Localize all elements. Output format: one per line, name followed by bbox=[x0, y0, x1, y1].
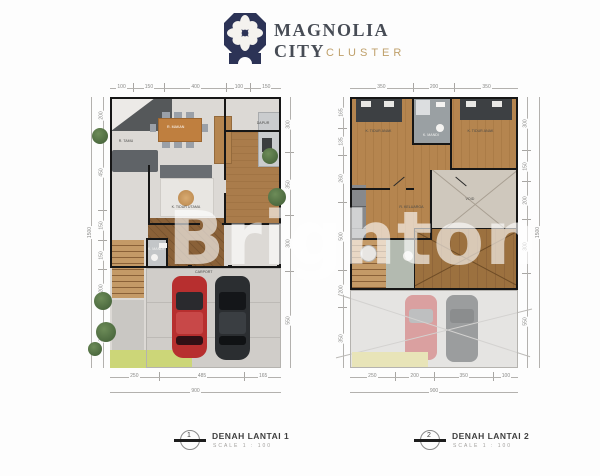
plan2-dims-right: 300 150 200 300 550 bbox=[522, 97, 531, 368]
room-label-bedroom: K. TIDUR UTAMA bbox=[172, 205, 201, 209]
plan1-dims-top: 100 150 400 100 150 bbox=[110, 83, 281, 92]
wall bbox=[350, 188, 390, 190]
magnolia-logo-icon bbox=[222, 11, 268, 65]
room-label-carport: CARPORT bbox=[195, 270, 213, 274]
plan2-dims-bottom-total: 900 bbox=[350, 387, 518, 396]
room-label-hall: R. KELUARGA bbox=[399, 205, 423, 209]
brand-title-line1: MAGNOLIA bbox=[274, 20, 389, 41]
room-label-living: R. TAMU bbox=[119, 139, 133, 143]
wall bbox=[224, 97, 226, 132]
room-label-bed2: K. TIDUR ANAK bbox=[467, 129, 493, 133]
plan1-dims-bottom-total: 900 bbox=[110, 387, 281, 396]
wall bbox=[412, 143, 452, 145]
plan2-dims-left: 165 135 260 500 200 350 bbox=[338, 97, 347, 368]
brand-title-line2: CITY bbox=[274, 41, 325, 62]
plan2-dims-top: 350 200 350 bbox=[350, 83, 518, 92]
room-label-bath2: K. MANDI bbox=[423, 133, 439, 137]
ref-bar-2 bbox=[414, 439, 446, 442]
black-car bbox=[215, 276, 250, 360]
tree-icon bbox=[88, 342, 102, 356]
ref-number-1: 1 bbox=[180, 432, 198, 439]
carport-boundary bbox=[146, 268, 281, 368]
red-car bbox=[172, 276, 207, 358]
wall bbox=[224, 130, 226, 180]
ref-number-2: 2 bbox=[420, 432, 438, 439]
room-label-bath: K. MANDI bbox=[148, 247, 164, 251]
wall bbox=[412, 97, 414, 145]
brand-subtitle: CLUSTER bbox=[326, 47, 405, 59]
room-label-bed1: K. TIDUR ANAK bbox=[365, 129, 391, 133]
plan1-perimeter-wall bbox=[110, 97, 281, 268]
wall bbox=[224, 193, 226, 225]
ref-label-2: DENAH LANTAI 2 bbox=[452, 431, 529, 441]
wall bbox=[110, 266, 148, 268]
wall bbox=[450, 168, 518, 170]
wall bbox=[222, 223, 281, 225]
plan1-dims-bottom: 250 485 165 bbox=[110, 372, 281, 381]
wall bbox=[430, 170, 432, 240]
room-label-kitchen: DAPUR bbox=[257, 121, 270, 125]
plan1-building: R. TAMU R. MAKAN DAPUR K. TIDUR UTAMA K.… bbox=[110, 97, 281, 368]
plan1-path bbox=[112, 300, 144, 352]
plan2-perimeter-wall bbox=[350, 97, 518, 290]
ref-bar-1 bbox=[174, 439, 206, 442]
wall bbox=[224, 130, 281, 132]
wall bbox=[148, 223, 200, 225]
room-label-dining: R. MAKAN bbox=[167, 125, 184, 129]
tree-icon bbox=[96, 322, 116, 342]
wall bbox=[350, 238, 432, 240]
tree-icon bbox=[94, 292, 112, 310]
ref-label-1: DENAH LANTAI 1 bbox=[212, 431, 289, 441]
plan2-building: K. TIDUR ANAK K. TIDUR ANAK K. MANDI R. … bbox=[350, 97, 518, 368]
wall bbox=[148, 165, 150, 225]
tree-icon bbox=[262, 148, 278, 164]
plan1-dims-right: 300 350 300 550 bbox=[285, 97, 294, 368]
plan2-dims-bottom: 250 200 350 100 bbox=[350, 372, 518, 381]
wall bbox=[450, 97, 452, 170]
plan2-lower-ghost bbox=[350, 290, 518, 368]
tree-icon bbox=[92, 128, 108, 144]
room-label-void: VOID bbox=[465, 197, 474, 201]
ref-scale-1: SCALE 1 : 100 bbox=[213, 443, 272, 449]
wall bbox=[406, 188, 414, 190]
tree-icon bbox=[268, 188, 286, 206]
ref-scale-2: SCALE 1 : 100 bbox=[453, 443, 512, 449]
plan2-dims-right-total: 1500 bbox=[534, 97, 543, 368]
floorplan-sheet: MAGNOLIA CITY CLUSTER 100 150 400 100 15… bbox=[0, 0, 600, 476]
